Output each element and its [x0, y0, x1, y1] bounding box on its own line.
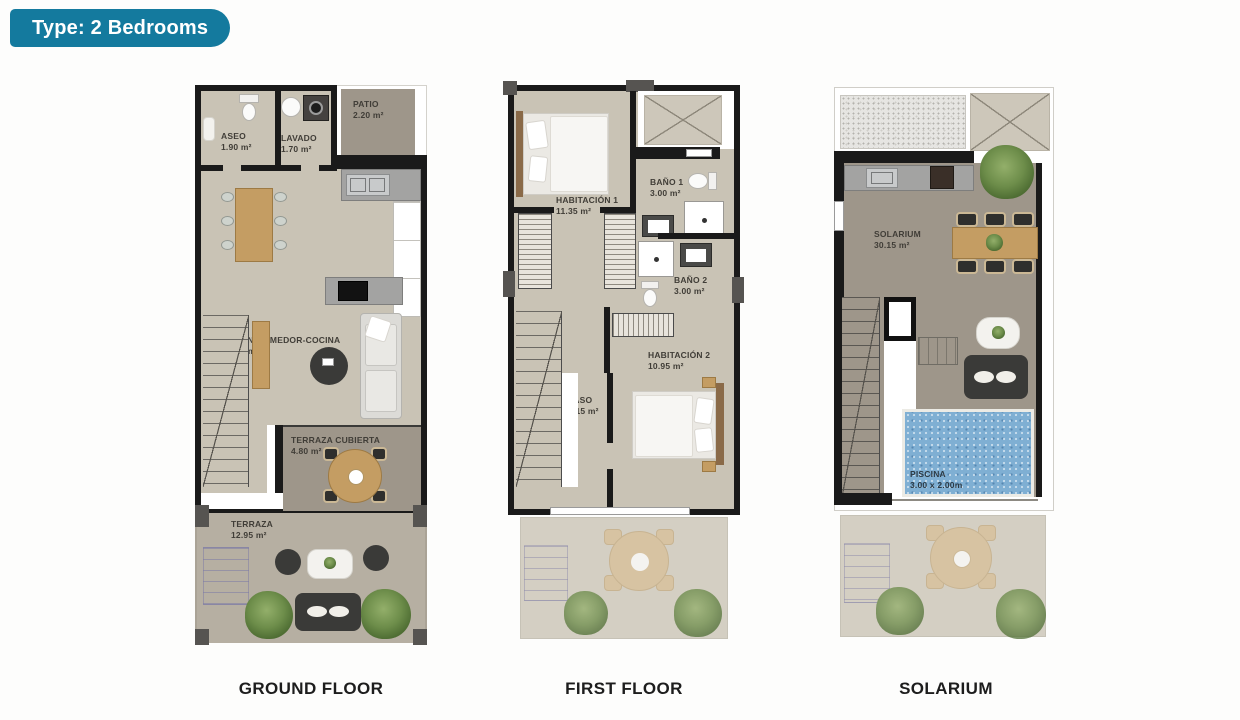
- kitchen-sink-icon: [346, 174, 390, 196]
- wardrobe: [518, 213, 552, 289]
- caption-ground-floor: GROUND FLOOR: [195, 679, 427, 699]
- round-table: [328, 449, 382, 503]
- sliding-door: [550, 507, 690, 515]
- chair-icon: [274, 216, 287, 226]
- first-floor-plan: HABITACIÓN 1 11.35 m² BAÑO 1 3.00 m²: [508, 85, 740, 657]
- coffee-table: [310, 347, 348, 385]
- caption-first-floor: FIRST FLOOR: [508, 679, 740, 699]
- walkway: [201, 493, 283, 509]
- wall: [658, 233, 740, 239]
- ground-floor-plan: PATIO 2.20 m² ASEO 1.90 m² LAVADO 1.70 m…: [195, 85, 427, 657]
- outdoor-sofa: [295, 593, 361, 631]
- walkway: [267, 425, 275, 493]
- chair-icon: [221, 192, 234, 202]
- wall: [335, 155, 427, 169]
- bed: [632, 391, 716, 459]
- dining-table: [235, 188, 273, 262]
- sideboard: [252, 321, 270, 389]
- ottoman: [275, 549, 301, 575]
- outdoor-sofa: [964, 355, 1028, 399]
- chair-icon: [956, 259, 978, 274]
- room-label-aseo: ASEO 1.90 m²: [221, 131, 252, 153]
- ottoman: [363, 545, 389, 571]
- solarium-plan: SOLARIUM 30.15 m² PISCINA 3.00 x 2.00m: [830, 85, 1062, 657]
- pillar: [732, 277, 744, 303]
- chair-icon: [984, 259, 1006, 274]
- pillar: [413, 505, 427, 527]
- pillar: [195, 505, 209, 527]
- toilet-icon: [641, 281, 659, 289]
- stair-shaft: [884, 297, 916, 341]
- wall: [834, 151, 844, 201]
- room-label-solarium: SOLARIUM 30.15 m²: [874, 229, 921, 251]
- room-label-patio: PATIO 2.20 m²: [353, 99, 384, 121]
- wall: [331, 85, 337, 169]
- sink-icon: [866, 168, 898, 188]
- stair-guide-line: [842, 297, 880, 497]
- railing: [918, 337, 958, 365]
- plant-icon: [361, 589, 411, 639]
- wall: [275, 425, 283, 495]
- room-label-habitacion2: HABITACIÓN 2 10.95 m²: [648, 350, 710, 372]
- wall: [834, 493, 892, 505]
- vanity-sink: [680, 243, 712, 267]
- window: [686, 149, 712, 157]
- chair-icon: [274, 192, 287, 202]
- bed-headboard: [716, 383, 724, 465]
- plant-icon: [992, 326, 1005, 339]
- floorplan-sheet: Type: 2 Bedrooms PATIO 2.20 m² ASEO 1.90…: [0, 0, 1240, 720]
- round-sink-icon: [281, 97, 301, 117]
- door-opening: [301, 165, 319, 171]
- chair-icon: [984, 212, 1006, 227]
- chair-icon: [1012, 212, 1034, 227]
- pillar: [503, 81, 517, 95]
- plant-icon: [986, 234, 1003, 251]
- terrace-below-outline: [840, 515, 1046, 637]
- sink-icon: [203, 117, 215, 141]
- room-label-bano1: BAÑO 1 3.00 m²: [650, 177, 683, 199]
- wall: [1036, 163, 1042, 497]
- shower: [638, 241, 674, 277]
- room-label-terraza: TERRAZA 12.95 m²: [231, 519, 273, 541]
- sofa: [360, 313, 402, 419]
- plant-icon: [245, 591, 293, 639]
- pillar: [413, 629, 427, 645]
- plant-icon: [980, 145, 1034, 199]
- type-badge: Type: 2 Bedrooms: [10, 9, 230, 47]
- chair-icon: [274, 240, 287, 250]
- landing: [562, 373, 578, 487]
- nightstand: [702, 461, 716, 472]
- skylight-void: [644, 95, 722, 145]
- wall: [604, 307, 610, 373]
- nightstand: [702, 377, 716, 388]
- room-label-piscina: PISCINA 3.00 x 2.00m: [910, 469, 963, 491]
- toilet-icon: [643, 289, 657, 307]
- plant-icon: [324, 557, 336, 569]
- door-opening: [223, 165, 241, 171]
- terrace-edge-line: [892, 499, 1038, 501]
- pillar: [503, 271, 515, 297]
- caption-solarium: SOLARIUM: [830, 679, 1062, 699]
- cooktop-icon: [338, 281, 368, 301]
- stair-guide-line: [516, 311, 562, 487]
- window: [834, 201, 844, 231]
- pillar: [195, 629, 209, 645]
- wall: [607, 373, 613, 443]
- chair-icon: [221, 240, 234, 250]
- bbq-icon: [930, 166, 954, 189]
- wardrobe: [612, 313, 674, 337]
- stairs-outline: [203, 547, 249, 605]
- wall: [275, 91, 281, 171]
- bed: [523, 113, 609, 195]
- chair-icon: [1012, 259, 1034, 274]
- outdoor-counter: [844, 165, 974, 191]
- bed-headboard: [516, 111, 523, 197]
- toilet-icon: [242, 103, 256, 121]
- toilet-icon: [708, 172, 717, 190]
- wall: [607, 469, 613, 509]
- wall: [834, 151, 974, 163]
- wardrobe: [604, 213, 636, 289]
- chair-icon: [956, 212, 978, 227]
- tiled-roof: [970, 93, 1050, 151]
- room-label-bano2: BAÑO 2 3.00 m²: [674, 275, 707, 297]
- gravel-roof: [840, 95, 966, 149]
- room-label-lavado: LAVADO 1.70 m²: [281, 133, 317, 155]
- toilet-icon: [239, 94, 259, 103]
- stair-guide-line: [203, 315, 249, 487]
- terrace-below-outline: [520, 517, 728, 639]
- washing-machine-icon: [303, 95, 329, 121]
- toilet-icon: [688, 173, 708, 189]
- chair-icon: [221, 216, 234, 226]
